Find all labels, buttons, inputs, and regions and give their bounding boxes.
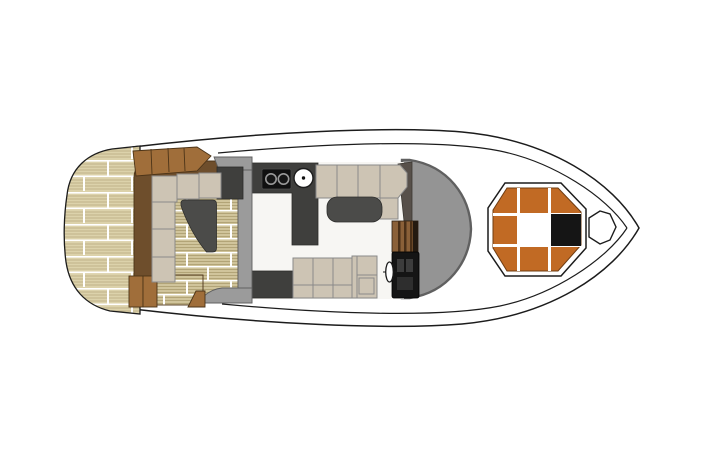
cockpit-cushion — [152, 202, 175, 229]
sink-drain — [302, 176, 305, 179]
cabinet-stripe — [410, 221, 413, 252]
console-slot — [406, 259, 413, 272]
aft-cockpit — [64, 146, 252, 314]
aft-cabinet — [247, 271, 293, 298]
console-slot — [397, 277, 413, 290]
sofa-cushion — [337, 165, 358, 198]
sofa-cushion — [380, 198, 398, 219]
sunpad-center-panel — [517, 213, 551, 247]
sofa-cushion — [316, 165, 337, 198]
salon-table — [327, 197, 382, 222]
steering-wheel — [386, 262, 394, 282]
cockpit-cushion — [199, 173, 221, 198]
sunpad-hatch — [551, 214, 581, 246]
cockpit-cushion — [152, 229, 175, 257]
sofa-cushion — [333, 258, 352, 298]
sofa-end-module — [352, 256, 377, 298]
cabinet-stripe — [398, 221, 401, 252]
cabinet-end — [413, 221, 418, 252]
cockpit-cushion — [152, 176, 177, 202]
cockpit-cushion — [177, 174, 199, 199]
salon-sofa-bottom — [293, 256, 377, 298]
sofa-cushion — [313, 258, 333, 298]
cabinet-stripe — [404, 221, 407, 252]
deck-plan-svg: yacht-deck-plan — [0, 0, 713, 476]
salon — [247, 162, 419, 299]
cockpit-cushion — [152, 257, 175, 282]
helm-console — [392, 252, 419, 298]
cooktop-burner-right — [278, 174, 288, 184]
console-slot — [397, 259, 404, 272]
deck-plan-canvas: yacht-deck-plan — [0, 0, 713, 476]
sofa-cushion — [358, 165, 380, 198]
sofa-cushion — [293, 258, 313, 298]
step-bottom — [129, 276, 143, 307]
cooktop-burner-left — [266, 174, 276, 184]
